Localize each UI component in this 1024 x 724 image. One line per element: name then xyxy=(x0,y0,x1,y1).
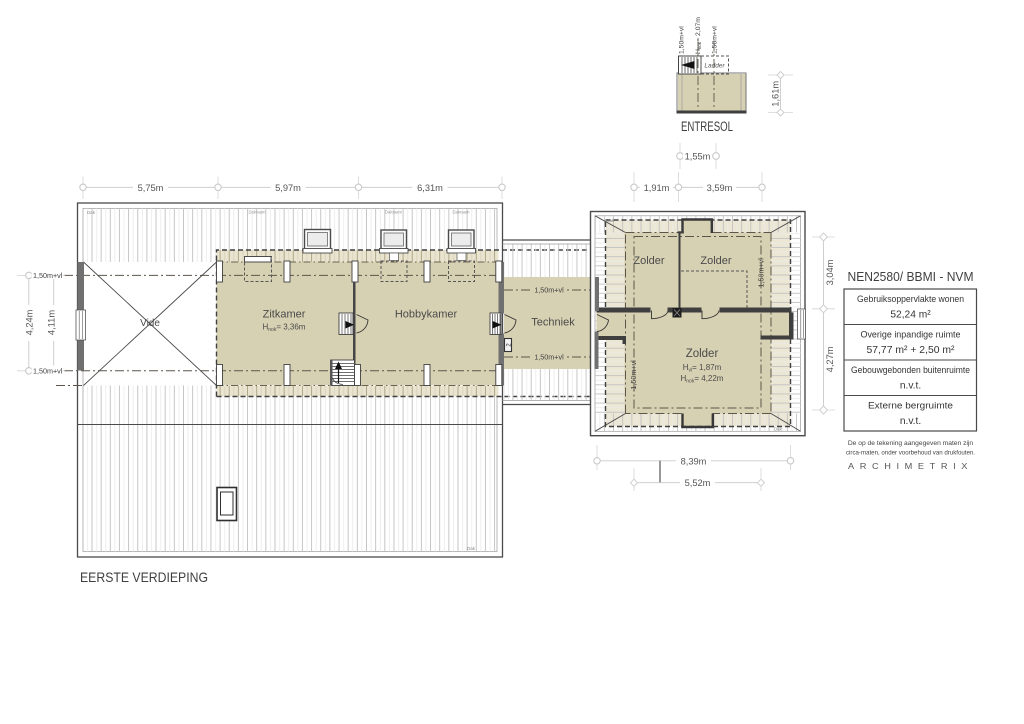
svg-text:1,91m: 1,91m xyxy=(644,183,670,193)
svg-text:Dak: Dak xyxy=(606,218,615,223)
svg-text:4,24m: 4,24m xyxy=(24,309,34,335)
svg-text:Zitkamer: Zitkamer xyxy=(263,309,306,321)
svg-text:Techniek: Techniek xyxy=(531,317,575,329)
svg-text:Externe bergruimte: Externe bergruimte xyxy=(868,401,953,412)
svg-text:Gebouwgebonden buitenruimte: Gebouwgebonden buitenruimte xyxy=(851,365,970,376)
svg-text:5,97m: 5,97m xyxy=(275,183,301,193)
svg-text:6,31m: 6,31m xyxy=(417,183,443,193)
svg-text:1,55m: 1,55m xyxy=(685,152,711,162)
svg-text:n.v.t.: n.v.t. xyxy=(900,416,921,427)
svg-text:De op de tekening aangegeven m: De op de tekening aangegeven maten zijn xyxy=(848,440,974,447)
svg-text:Gebruiksoppervlakte wonen: Gebruiksoppervlakte wonen xyxy=(857,294,964,305)
svg-text:Ladder: Ladder xyxy=(704,63,725,70)
svg-text:EERSTE VERDIEPING: EERSTE VERDIEPING xyxy=(80,569,208,585)
svg-text:3,59m: 3,59m xyxy=(707,183,733,193)
svg-text:1,50m+vl: 1,50m+vl xyxy=(757,258,766,288)
svg-text:Dak: Dak xyxy=(87,210,96,215)
svg-text:Vide: Vide xyxy=(140,318,160,329)
svg-text:ENTRESOL: ENTRESOL xyxy=(681,119,733,134)
svg-text:4,27m: 4,27m xyxy=(825,346,835,372)
svg-text:n.v.t.: n.v.t. xyxy=(900,381,921,392)
svg-text:Zolder: Zolder xyxy=(700,255,732,267)
svg-text:Dakraam: Dakraam xyxy=(249,210,266,215)
svg-text:57,77 m² + 2,50 m²: 57,77 m² + 2,50 m² xyxy=(867,345,956,356)
svg-text:Hnok= 2,07m: Hnok= 2,07m xyxy=(695,17,702,54)
svg-text:1,50m+vl: 1,50m+vl xyxy=(33,271,63,280)
svg-text:circa-maten, onder voorbehoud: circa-maten, onder voorbehoud van drukfo… xyxy=(846,450,975,457)
svg-text:-1,50m+vl: -1,50m+vl xyxy=(629,360,638,392)
svg-text:ARCHIMETRIX: ARCHIMETRIX xyxy=(848,461,973,471)
svg-text:Zolder: Zolder xyxy=(686,348,719,360)
svg-text:Dak: Dak xyxy=(467,546,476,551)
svg-text:Overige inpandige ruimte: Overige inpandige ruimte xyxy=(861,330,961,341)
svg-text:Hobbykamer: Hobbykamer xyxy=(395,309,458,321)
svg-text:1,61m: 1,61m xyxy=(771,81,781,107)
svg-text:1,50m+vl: 1,50m+vl xyxy=(33,366,63,375)
svg-text:1,50m+vl: 1,50m+vl xyxy=(712,26,719,54)
svg-text:Zolder: Zolder xyxy=(633,255,665,267)
svg-text:5,52m: 5,52m xyxy=(685,478,711,488)
svg-text:8,39m: 8,39m xyxy=(681,456,707,466)
svg-text:Dakraam: Dakraam xyxy=(385,210,402,215)
svg-text:Dakraam: Dakraam xyxy=(453,210,470,215)
svg-text:3,04m: 3,04m xyxy=(825,259,835,285)
svg-text:52,24 m²: 52,24 m² xyxy=(890,310,931,321)
svg-text:Dak: Dak xyxy=(774,427,783,432)
svg-text:5,75m: 5,75m xyxy=(138,183,164,193)
svg-text:NEN2580/ BBMI - NVM: NEN2580/ BBMI - NVM xyxy=(848,269,974,284)
svg-text:1,50m+vl: 1,50m+vl xyxy=(534,352,564,361)
svg-text:1,50m+vl: 1,50m+vl xyxy=(534,285,564,294)
svg-text:1,50m+vl: 1,50m+vl xyxy=(679,26,686,54)
svg-text:4,11m: 4,11m xyxy=(47,310,57,335)
